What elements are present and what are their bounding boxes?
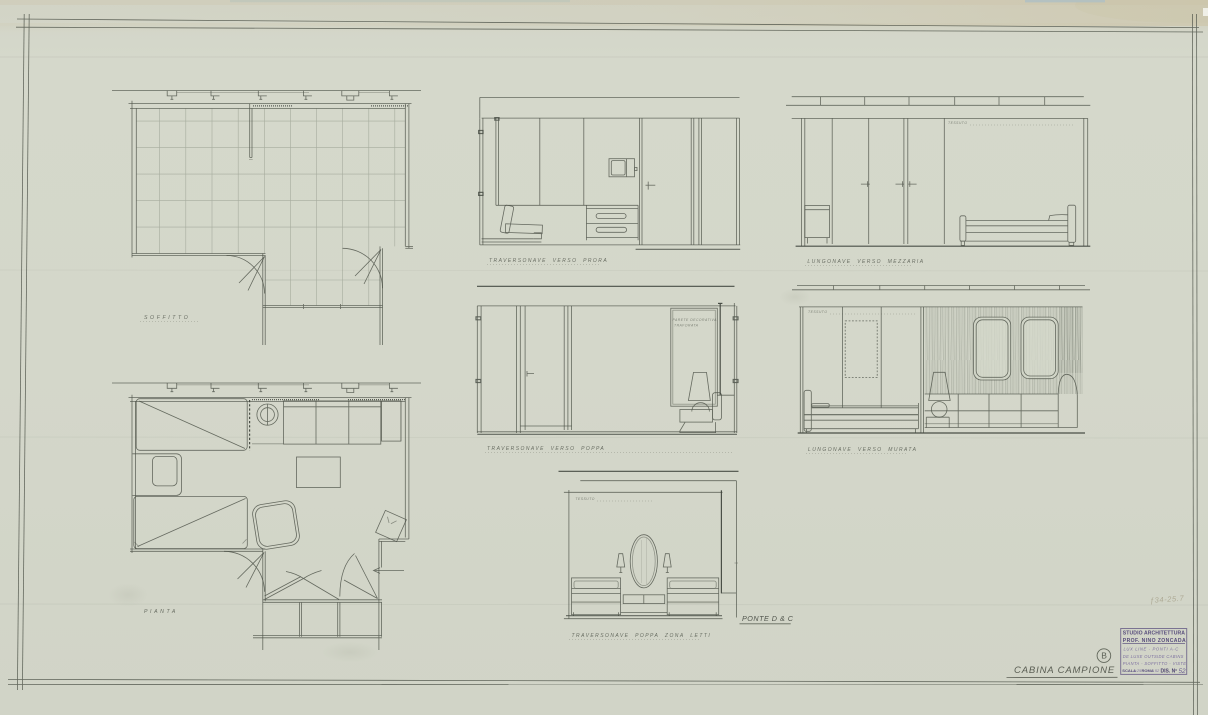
svg-text:DIS. Nº: DIS. Nº <box>1161 668 1178 674</box>
svg-text:TESSUTO: TESSUTO <box>948 121 967 125</box>
svg-text:STUDIO ARCHITETTURA: STUDIO ARCHITETTURA <box>1123 631 1185 637</box>
svg-text:PIANTA: PIANTA <box>144 609 178 615</box>
svg-text:TRAVERSONAVE VERSO PRORA: TRAVERSONAVE VERSO PRORA <box>489 258 608 264</box>
svg-text:TRAVERSONAVE VERSO POPPA: TRAVERSONAVE VERSO POPPA <box>487 446 605 452</box>
svg-text:52: 52 <box>1179 668 1187 675</box>
svg-text:/ 52: / 52 <box>1152 668 1160 673</box>
svg-text:PARETE DECORATIVA: PARETE DECORATIVA <box>673 318 718 322</box>
svg-text:DE LUXE OUTSIDE CABINS: DE LUXE OUTSIDE CABINS <box>1123 654 1184 659</box>
svg-text:LUNGONAVE VERSO MEZZARIA: LUNGONAVE VERSO MEZZARIA <box>807 259 924 265</box>
svg-text:SOFFITTO: SOFFITTO <box>144 315 190 321</box>
svg-text:LUNGONAVE VERSO MURATA: LUNGONAVE VERSO MURATA <box>808 447 917 453</box>
svg-text:LUX LINE - PONTI A-C: LUX LINE - PONTI A-C <box>1124 647 1180 652</box>
svg-text:PROF. NINO ZONCADA: PROF. NINO ZONCADA <box>1123 638 1186 644</box>
svg-text:B: B <box>1101 651 1107 661</box>
svg-text:TESSUTO: TESSUTO <box>808 310 827 314</box>
svg-text:CABINA CAMPIONE: CABINA CAMPIONE <box>1014 665 1115 676</box>
svg-text:TRAFORATA: TRAFORATA <box>674 324 699 328</box>
svg-text:PIANTA - SOFFITTO - VISTE: PIANTA - SOFFITTO - VISTE <box>1123 661 1187 666</box>
svg-text:TRAVERSONAVE POPPA ZONA LET: TRAVERSONAVE POPPA ZONA LETTI <box>572 633 712 639</box>
svg-text:PONTE D & C: PONTE D & C <box>742 614 794 623</box>
svg-text:TESSUTO: TESSUTO <box>575 497 594 501</box>
